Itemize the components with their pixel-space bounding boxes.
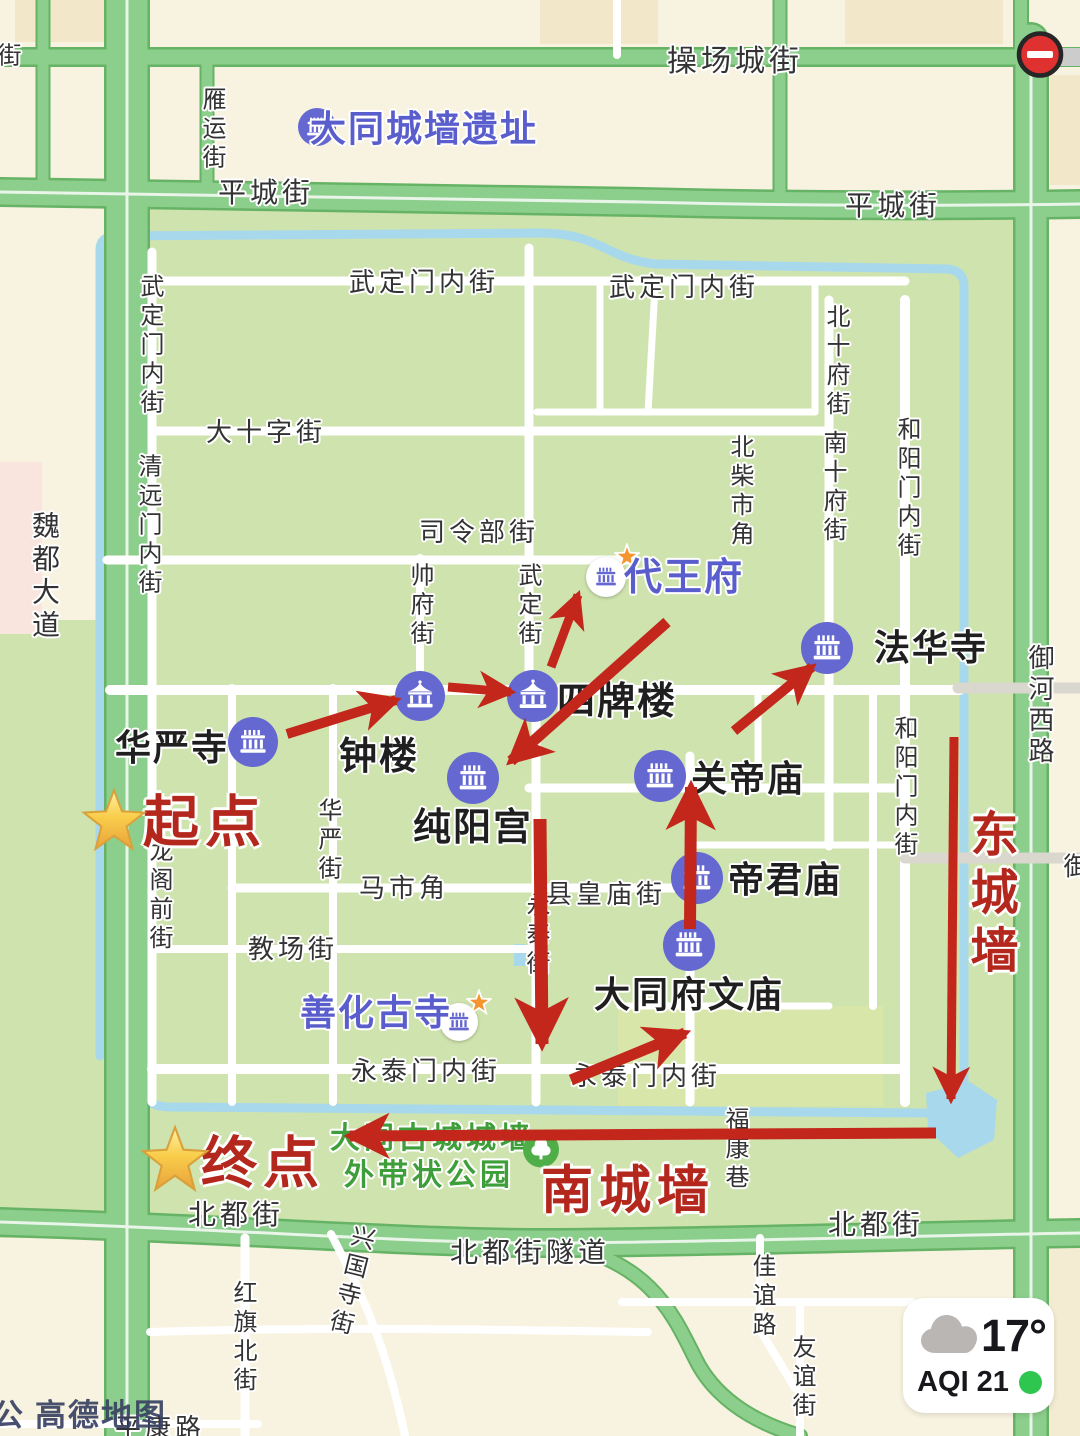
watermark-text: 高德地图 <box>35 1390 167 1435</box>
route-arrow <box>734 667 812 731</box>
route-arrow <box>448 687 511 692</box>
watermark-edge-glyph: 公 <box>0 1390 25 1435</box>
aqi-value: AQI 21 <box>917 1366 1009 1399</box>
route-arrow-layer <box>0 0 1080 1436</box>
weather-widget[interactable]: 17° AQI 21 <box>903 1298 1054 1413</box>
route-arrow <box>951 737 954 1099</box>
route-arrow <box>690 787 691 929</box>
cloud-icon <box>917 1311 981 1362</box>
amap-watermark: 公 高德地图 <box>0 1390 167 1435</box>
amap-screenshot: 操场城街平城街平城街雁运街街魏都大道武定门内街武定门内街武定门内街大十字街清远门… <box>0 0 1080 1436</box>
route-arrow <box>511 622 667 761</box>
route-arrow <box>540 819 542 1044</box>
route-arrow <box>551 595 578 667</box>
aqi-status-dot <box>1019 1371 1042 1394</box>
no-entry-icon[interactable] <box>1015 30 1065 85</box>
temperature: 17° <box>981 1310 1046 1362</box>
route-arrow <box>287 700 396 734</box>
route-arrow <box>571 1033 685 1080</box>
route-arrow <box>350 1133 936 1136</box>
